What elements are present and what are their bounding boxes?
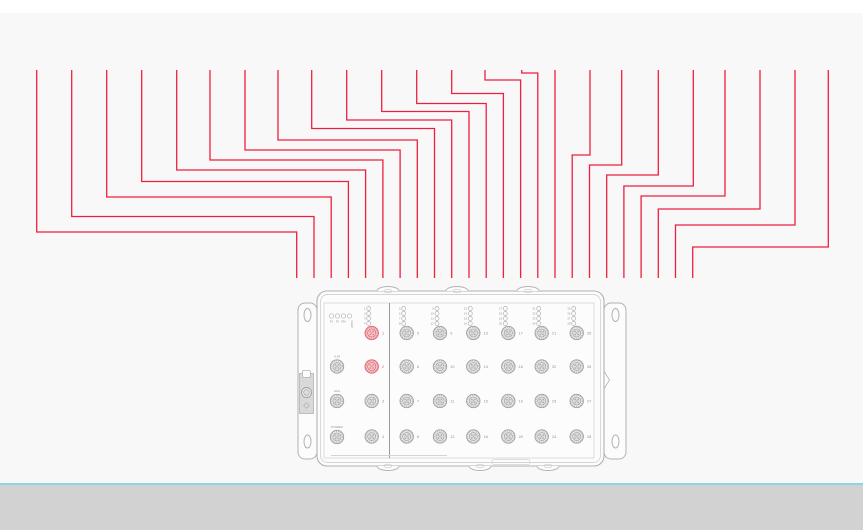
port-pin [542, 399, 544, 401]
port-pin-center [541, 332, 542, 333]
port-pin-center [336, 436, 337, 437]
port-pin [471, 334, 473, 336]
switch-device[interactable]: P1P2RMFAULTV.24ACAPOWER11223344556677889… [298, 287, 626, 471]
port-pin [509, 334, 511, 336]
tiny-label: 15 [484, 400, 488, 404]
port-pin [404, 364, 406, 366]
tiny-label: 18 [499, 312, 503, 316]
link-led-20 [503, 322, 507, 326]
port-pin-center [473, 366, 474, 367]
port-pin [372, 334, 374, 336]
port-pin [506, 437, 508, 439]
port-pin [506, 402, 508, 404]
tiny-label: P2 [336, 320, 340, 324]
port-pin-center [371, 400, 372, 401]
port-pin [542, 331, 544, 333]
port-pin [335, 364, 337, 366]
port-pin [335, 438, 337, 440]
tiny-label: 13 [484, 332, 488, 336]
tiny-label: 8 [417, 435, 419, 439]
port-pin-center [439, 436, 440, 437]
link-led-4 [367, 322, 371, 326]
port-pin [369, 331, 371, 333]
wire-11[interactable] [382, 70, 469, 278]
port-pin [338, 367, 340, 369]
port-pin [372, 367, 374, 369]
port-pin-center [541, 400, 542, 401]
tiny-label: ACA [334, 389, 341, 393]
tiny-label: 12 [450, 435, 454, 439]
status-led-fault [347, 314, 351, 318]
link-led-2 [367, 312, 371, 316]
port-pin [509, 434, 511, 436]
port-pin [338, 438, 340, 440]
link-led-3 [367, 317, 371, 321]
port-pin [474, 334, 476, 336]
tiny-label: 10 [431, 312, 435, 316]
side-port-v24[interactable] [330, 360, 343, 373]
screw-boss [517, 287, 539, 292]
port-pin [369, 402, 371, 404]
port-pin [407, 331, 409, 333]
port-pin [441, 437, 443, 439]
port-pin [369, 437, 371, 439]
tiny-label: 26 [587, 365, 591, 369]
port-pin [471, 437, 473, 439]
port-pin [506, 434, 508, 436]
port-pin [574, 437, 576, 439]
port-pin [438, 364, 440, 366]
port-pin [471, 364, 473, 366]
port-pin [407, 402, 409, 404]
link-led-11 [435, 317, 439, 321]
port-pin [441, 402, 443, 404]
wire-15[interactable] [522, 70, 538, 278]
tiny-label: 17 [519, 332, 523, 336]
port-pin [574, 434, 576, 436]
port-pin [338, 402, 340, 404]
wire-3[interactable] [107, 70, 332, 278]
tiny-label: 27 [567, 317, 571, 321]
port-pin [509, 399, 511, 401]
port-pin [474, 364, 476, 366]
port-pin-center [576, 436, 577, 437]
link-led-8 [402, 322, 406, 326]
tiny-label: 21 [532, 307, 536, 311]
tiny-label: 22 [552, 365, 556, 369]
port-pin [438, 399, 440, 401]
port-pin-center [336, 366, 337, 367]
port-pin [506, 331, 508, 333]
link-led-5 [402, 307, 406, 311]
tiny-label: 27 [587, 400, 591, 404]
app-canvas: P1P2RMFAULTV.24ACAPOWER11223344556677889… [0, 0, 863, 530]
port-pin [574, 334, 576, 336]
status-led-rm [341, 314, 345, 318]
port-pin [542, 334, 544, 336]
port-pin [539, 364, 541, 366]
port-pin [404, 334, 406, 336]
tiny-label: 11 [450, 400, 454, 404]
link-led-18 [503, 312, 507, 316]
port-pin [369, 434, 371, 436]
port-pin-center [406, 366, 407, 367]
device-body [317, 291, 604, 466]
side-port-power[interactable] [330, 430, 343, 443]
port-pin [441, 364, 443, 366]
port-pin [338, 399, 340, 401]
tiny-label: 20 [499, 322, 503, 326]
port-pin [471, 331, 473, 333]
link-led-22 [537, 312, 541, 316]
port-pin [438, 437, 440, 439]
tiny-label: 16 [464, 322, 468, 326]
port-pin [404, 367, 406, 369]
wire-8[interactable] [278, 70, 417, 278]
port-pin-center [508, 436, 509, 437]
tiny-label: 19 [499, 317, 503, 321]
port-pin-center [406, 436, 407, 437]
port-pin [539, 367, 541, 369]
side-port-aca[interactable] [330, 394, 343, 407]
link-led-13 [468, 307, 472, 311]
tiny-label: 4 [382, 435, 384, 439]
screw-boss [446, 287, 468, 292]
tiny-label: 10 [450, 365, 454, 369]
port-pin-center [508, 332, 509, 333]
side-bracket-connector-inner [304, 390, 310, 396]
tiny-label: 2 [382, 365, 384, 369]
tiny-label: V.24 [334, 355, 340, 359]
port-pin [335, 399, 337, 401]
port-pin [407, 334, 409, 336]
wiring-diagram: P1P2RMFAULTV.24ACAPOWER11223344556677889… [0, 0, 863, 483]
link-led-17 [503, 307, 507, 311]
wire-13[interactable] [452, 70, 504, 278]
tiny-label: 25 [567, 307, 571, 311]
wire-17[interactable] [572, 70, 590, 278]
tiny-label: 11 [431, 317, 434, 321]
tiny-label: 6 [417, 365, 419, 369]
port-pin [577, 399, 579, 401]
tiny-label: 23 [532, 317, 536, 321]
port-pin [542, 434, 544, 436]
port-pin [574, 399, 576, 401]
port-pin [404, 331, 406, 333]
screw-boss [377, 287, 399, 292]
port-pin [577, 331, 579, 333]
port-pin [441, 399, 443, 401]
port-pin [539, 402, 541, 404]
port-pin [539, 331, 541, 333]
port-pin [407, 364, 409, 366]
port-pin [372, 331, 374, 333]
port-pin [506, 399, 508, 401]
port-pin [509, 402, 511, 404]
wire-18[interactable] [590, 70, 622, 278]
port-pin [509, 364, 511, 366]
port-pin-center [473, 400, 474, 401]
link-led-9 [435, 307, 439, 311]
bottom-panel [0, 485, 863, 530]
port-pin [577, 367, 579, 369]
tiny-label: 5 [417, 332, 419, 336]
wire-1[interactable] [37, 70, 297, 278]
tiny-label: 22 [532, 312, 536, 316]
port-pin-center [371, 366, 372, 367]
port-pin-center [371, 436, 372, 437]
tiny-label: 16 [484, 435, 488, 439]
port-pin [372, 364, 374, 366]
port-pin-center [439, 400, 440, 401]
port-pin [338, 364, 340, 366]
port-pin-center [576, 400, 577, 401]
port-pin [335, 402, 337, 404]
wire-7[interactable] [245, 70, 400, 278]
tiny-label: 18 [519, 365, 523, 369]
port-pin [509, 437, 511, 439]
link-led-15 [468, 317, 472, 321]
link-led-26 [572, 312, 576, 316]
tiny-label: 14 [484, 365, 488, 369]
port-pin [506, 367, 508, 369]
port-pin [509, 331, 511, 333]
tiny-label: 19 [519, 400, 523, 404]
screw-boss [537, 466, 559, 471]
port-pin [404, 437, 406, 439]
side-bracket-tab [303, 371, 311, 378]
port-pin [471, 402, 473, 404]
link-led-14 [468, 312, 472, 316]
port-pin-center [508, 400, 509, 401]
port-pin [372, 399, 374, 401]
port-pin [471, 434, 473, 436]
port-pin [438, 367, 440, 369]
port-pin [539, 334, 541, 336]
link-led-25 [572, 307, 576, 311]
port-pin [372, 402, 374, 404]
port-pin [574, 402, 576, 404]
tiny-label: 9 [450, 332, 452, 336]
port-pin-center [473, 332, 474, 333]
port-pin [404, 402, 406, 404]
port-pin [372, 434, 374, 436]
port-pin [542, 367, 544, 369]
port-pin [474, 331, 476, 333]
link-led-24 [537, 322, 541, 326]
tiny-label: 1 [382, 332, 384, 336]
port-pin [471, 399, 473, 401]
port-pin-center [336, 400, 337, 401]
link-led-16 [468, 322, 472, 326]
link-led-12 [435, 322, 439, 326]
port-pin-center [439, 366, 440, 367]
port-pin [474, 399, 476, 401]
port-pin [441, 331, 443, 333]
wire-19[interactable] [607, 70, 659, 278]
port-pin-center [406, 332, 407, 333]
link-led-6 [402, 312, 406, 316]
port-pin-center [439, 332, 440, 333]
port-pin-center [576, 366, 577, 367]
port-pin [338, 435, 340, 437]
port-pin [441, 334, 443, 336]
tiny-label: 15 [464, 317, 468, 321]
tiny-label: 3 [382, 400, 384, 404]
port-pin [372, 437, 374, 439]
port-pin [369, 364, 371, 366]
port-pin-center [473, 436, 474, 437]
port-pin [577, 402, 579, 404]
link-led-21 [537, 307, 541, 311]
tiny-label: 7 [417, 400, 419, 404]
tiny-label: 28 [587, 435, 591, 439]
port-pin [407, 367, 409, 369]
tiny-label: 14 [464, 312, 468, 316]
port-pin-center [406, 400, 407, 401]
tiny-label: RM [341, 320, 345, 324]
port-pin [539, 437, 541, 439]
link-led-28 [572, 322, 576, 326]
port-pin [577, 434, 579, 436]
status-led-p2 [335, 314, 339, 318]
link-led-1 [367, 307, 371, 311]
port-pin [407, 437, 409, 439]
port-pin [441, 367, 443, 369]
port-pin-center [576, 332, 577, 333]
tiny-label: 21 [552, 332, 556, 336]
wire-5[interactable] [177, 70, 366, 278]
port-pin [509, 367, 511, 369]
port-pin-center [508, 366, 509, 367]
port-pin [438, 331, 440, 333]
port-pin [438, 334, 440, 336]
port-pin [438, 402, 440, 404]
port-pin [539, 399, 541, 401]
tiny-label: 23 [552, 400, 556, 404]
port-pin [369, 399, 371, 401]
link-led-27 [572, 317, 576, 321]
tiny-label: 17 [499, 307, 503, 311]
port-pin [574, 364, 576, 366]
link-led-10 [435, 312, 439, 316]
port-pin [506, 334, 508, 336]
tiny-label: 20 [519, 435, 523, 439]
link-led-19 [503, 317, 507, 321]
tiny-label: P1 [330, 320, 334, 324]
tiny-label: 25 [587, 332, 591, 336]
port-pin [404, 434, 406, 436]
port-pin [407, 399, 409, 401]
port-pin [335, 435, 337, 437]
port-pin [577, 364, 579, 366]
port-pin [574, 367, 576, 369]
port-pin [574, 331, 576, 333]
screw-boss [377, 466, 399, 471]
port-pin [369, 367, 371, 369]
port-pin-center [541, 366, 542, 367]
port-pin [369, 334, 371, 336]
tiny-label: 12 [431, 322, 435, 326]
port-pin [577, 334, 579, 336]
port-pin [407, 434, 409, 436]
port-pin [404, 399, 406, 401]
tiny-label: FAULT [350, 321, 354, 329]
port-pin-center [371, 332, 372, 333]
port-pin [438, 434, 440, 436]
tiny-label: 13 [464, 307, 468, 311]
port-pin [506, 364, 508, 366]
port-pin [577, 437, 579, 439]
port-pin [542, 437, 544, 439]
wire-10[interactable] [347, 70, 452, 278]
screw-boss [469, 466, 491, 471]
tiny-label: 24 [532, 322, 536, 326]
port-pin [542, 402, 544, 404]
port-pin [542, 364, 544, 366]
port-pin [471, 367, 473, 369]
port-pin [474, 402, 476, 404]
link-led-23 [537, 317, 541, 321]
port-pin [474, 437, 476, 439]
tiny-label: 28 [567, 322, 571, 326]
port-pin [441, 434, 443, 436]
port-pin [474, 434, 476, 436]
port-pin [335, 367, 337, 369]
tiny-label: 26 [567, 312, 571, 316]
port-pin-center [541, 436, 542, 437]
status-led-p1 [329, 314, 333, 318]
link-led-7 [402, 317, 406, 321]
tiny-label: 24 [552, 435, 556, 439]
port-pin [474, 367, 476, 369]
port-pin [539, 434, 541, 436]
tiny-label: POWER [331, 425, 343, 429]
